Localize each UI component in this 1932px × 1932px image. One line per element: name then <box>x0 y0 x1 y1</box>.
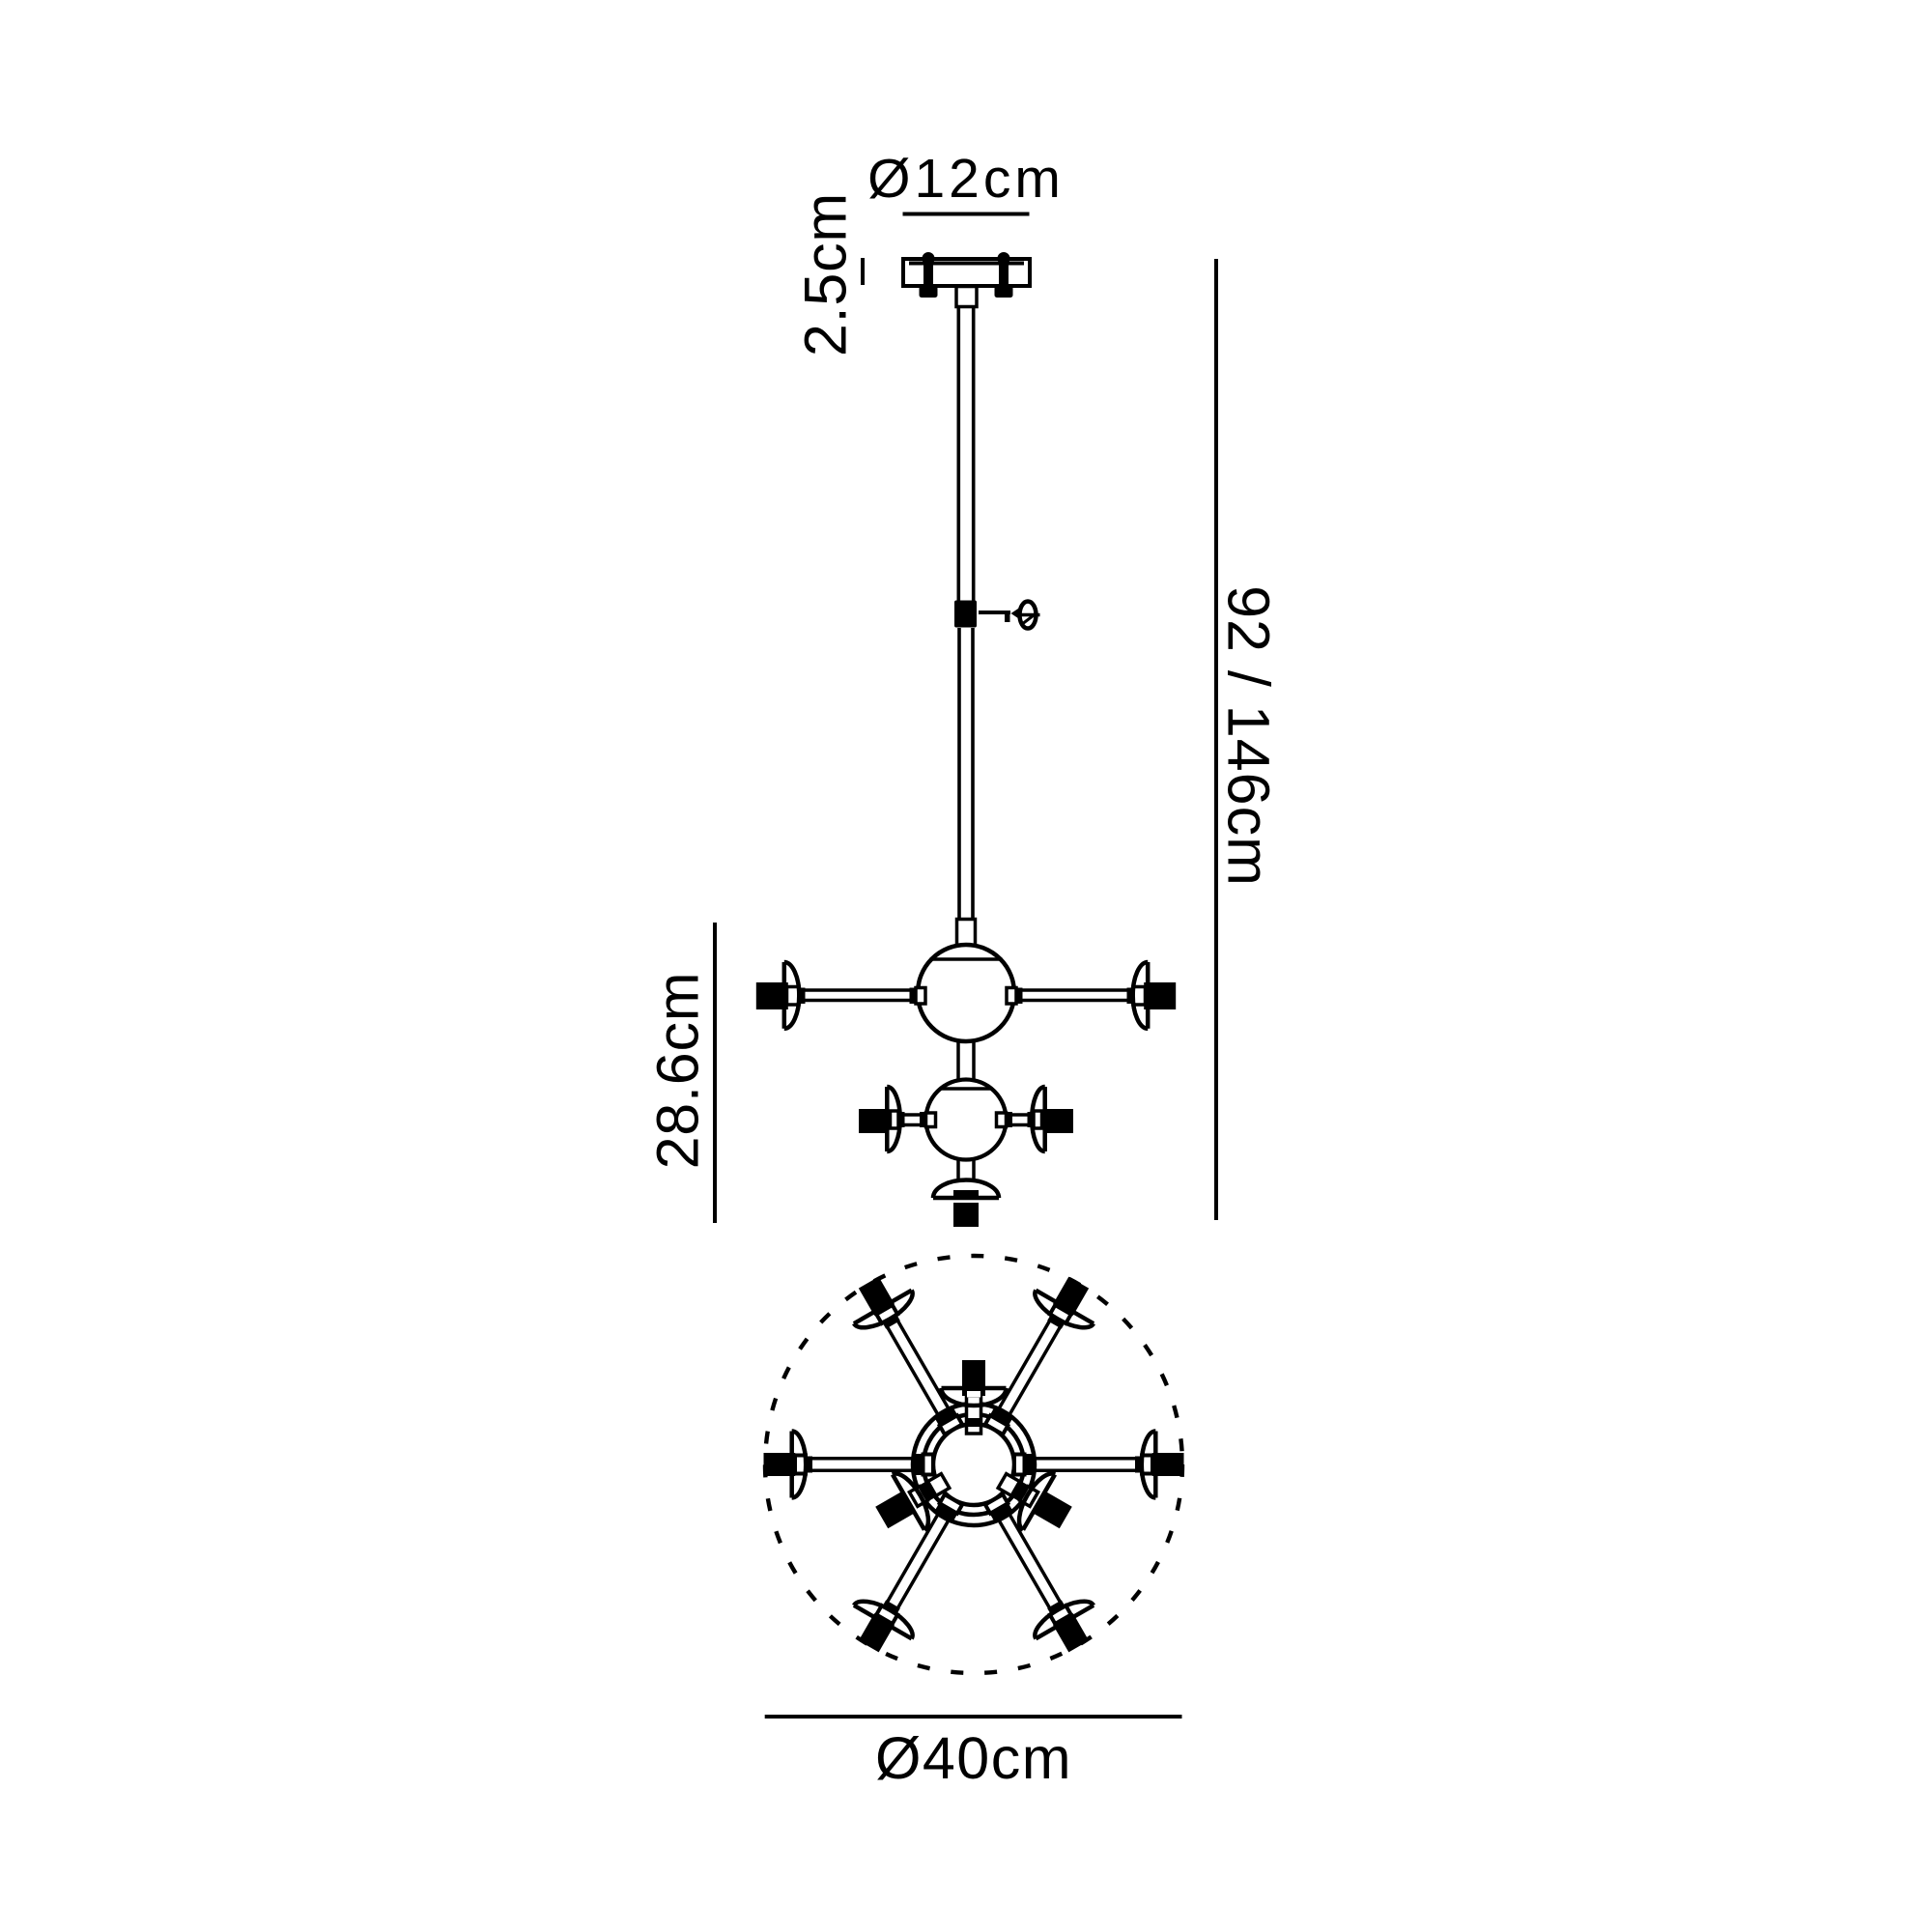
svg-text:2.5cm: 2.5cm <box>793 192 859 356</box>
svg-text:92 / 146cm: 92 / 146cm <box>1216 585 1282 887</box>
svg-text:Ø12cm: Ø12cm <box>867 148 1065 210</box>
svg-text:28.6cm: 28.6cm <box>645 972 711 1170</box>
svg-text:Ø40cm: Ø40cm <box>875 1725 1072 1791</box>
